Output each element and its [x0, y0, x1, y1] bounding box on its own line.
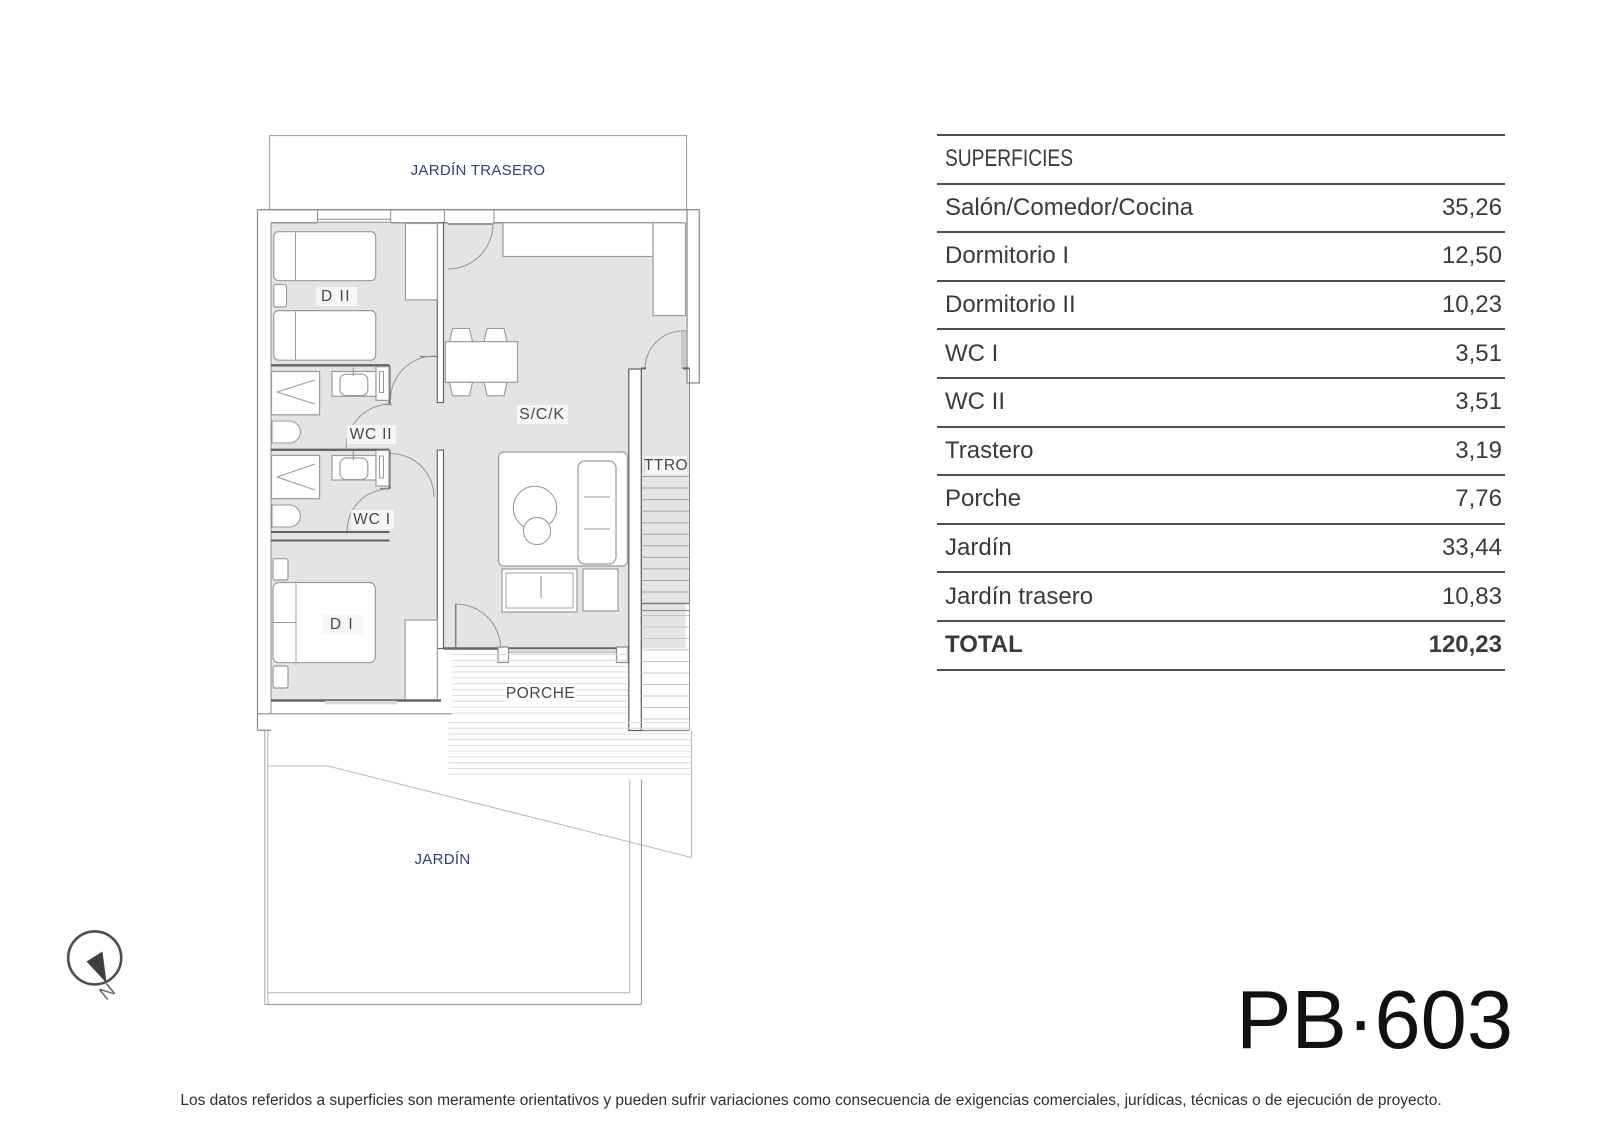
svg-text:PORCHE: PORCHE — [506, 685, 575, 702]
svg-text:D II: D II — [321, 288, 351, 305]
svg-text:WC II: WC II — [350, 426, 393, 443]
svg-text:WC I: WC I — [353, 511, 391, 528]
svg-text:D I: D I — [330, 616, 354, 633]
svg-text:TTRO: TTRO — [644, 457, 688, 474]
svg-text:JARDÍN: JARDÍN — [415, 851, 471, 868]
svg-text:S/C/K: S/C/K — [519, 406, 565, 423]
svg-text:JARDÍN TRASERO: JARDÍN TRASERO — [411, 162, 546, 179]
